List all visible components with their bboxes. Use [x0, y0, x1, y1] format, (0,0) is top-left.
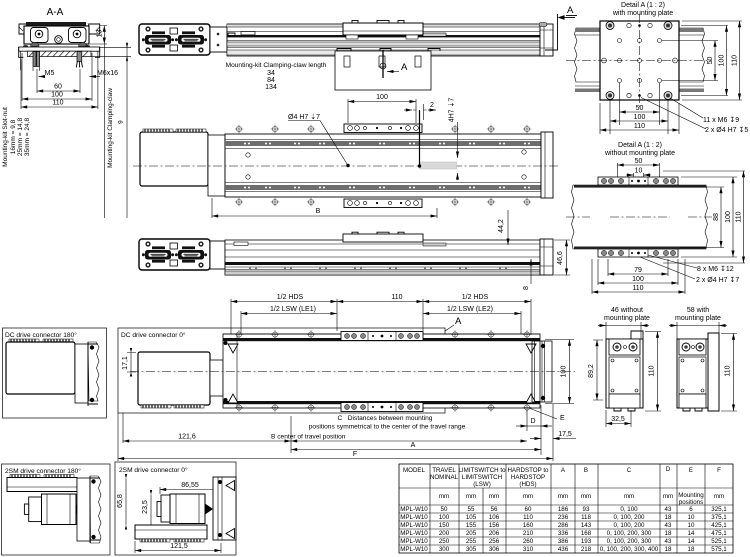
svg-text:MODEL: MODEL [403, 467, 426, 474]
svg-text:110: 110 [649, 365, 656, 376]
svg-text:Ø4 H7 ⇣7: Ø4 H7 ⇣7 [288, 113, 320, 121]
svg-text:11 x M6 ↧9: 11 x M6 ↧9 [703, 116, 739, 124]
svg-text:475,1: 475,1 [711, 530, 727, 537]
svg-text:43: 43 [665, 522, 672, 529]
svg-text:without mounting plate: without mounting plate [604, 150, 675, 157]
svg-text:200: 200 [439, 530, 450, 537]
svg-text:100: 100 [725, 211, 732, 223]
svg-text:B: B [316, 208, 321, 215]
svg-text:1/2 LSW (LE2): 1/2 LSW (LE2) [447, 306, 493, 313]
svg-text:A: A [567, 5, 574, 16]
svg-text:mm: mm [523, 493, 533, 500]
svg-text:0, 100, 200, 300: 0, 100, 200, 300 [607, 538, 652, 545]
svg-text:2: 2 [430, 102, 434, 109]
svg-text:110: 110 [634, 123, 645, 130]
svg-text:425,1: 425,1 [711, 522, 727, 529]
svg-text:MPL-W10: MPL-W10 [400, 506, 428, 513]
svg-text:205: 205 [466, 530, 477, 537]
svg-text:110: 110 [725, 365, 732, 376]
svg-text:236: 236 [558, 514, 569, 521]
svg-text:1/2 HDS: 1/2 HDS [277, 294, 304, 301]
svg-text:9: 9 [118, 120, 125, 124]
svg-text:106: 106 [489, 514, 500, 521]
svg-text:160: 160 [523, 522, 534, 529]
svg-text:100: 100 [634, 114, 646, 121]
svg-text:86,55: 86,55 [181, 482, 199, 489]
svg-text:436: 436 [558, 546, 569, 553]
svg-text:56: 56 [491, 506, 498, 513]
svg-text:1/2 HDS: 1/2 HDS [462, 294, 489, 301]
svg-text:250: 250 [439, 538, 450, 545]
svg-text:110: 110 [632, 285, 643, 292]
svg-text:Mounting-kit Clamping-claw len: Mounting-kit Clamping-claw length [226, 62, 327, 69]
svg-text:186: 186 [558, 506, 569, 513]
svg-text:168: 168 [581, 530, 592, 537]
svg-text:18: 18 [665, 530, 672, 537]
svg-text:mounting plate: mounting plate [675, 315, 721, 322]
svg-text:positions symmetrical to the c: positions symmetrical to the center of t… [309, 424, 466, 431]
svg-text:A-A: A-A [47, 7, 64, 18]
svg-text:134: 134 [265, 84, 277, 91]
svg-text:43: 43 [665, 538, 672, 545]
svg-text:121,5: 121,5 [170, 543, 188, 550]
svg-text:286: 286 [558, 522, 569, 529]
svg-text:44,2: 44,2 [498, 219, 505, 233]
svg-text:46,6: 46,6 [557, 251, 564, 265]
svg-text:65,8: 65,8 [117, 494, 124, 508]
svg-text:110: 110 [391, 294, 402, 301]
svg-text:260: 260 [523, 538, 534, 545]
svg-text:0, 100, 200: 0, 100, 200 [614, 522, 646, 529]
svg-text:mm: mm [466, 493, 476, 500]
svg-text:110: 110 [736, 211, 743, 222]
svg-text:143: 143 [581, 522, 592, 529]
svg-text:46 without: 46 without [611, 307, 643, 314]
svg-text:Detail A (1 : 2): Detail A (1 : 2) [621, 2, 665, 9]
svg-text:35mm = 24,8: 35mm = 24,8 [24, 118, 31, 157]
svg-text:575,1: 575,1 [711, 546, 727, 553]
svg-text:6: 6 [689, 506, 693, 513]
svg-text:218: 218 [581, 546, 592, 553]
svg-text:M5: M5 [45, 70, 55, 77]
svg-text:HARDSTOP to: HARDSTOP to [507, 467, 549, 474]
svg-text:50: 50 [635, 158, 643, 165]
svg-text:MPL-W10: MPL-W10 [400, 546, 428, 553]
svg-text:110: 110 [52, 100, 63, 107]
svg-text:mm: mm [439, 493, 449, 500]
svg-text:121,6: 121,6 [178, 434, 196, 441]
svg-text:mm: mm [714, 493, 724, 500]
svg-text:118: 118 [581, 514, 591, 521]
svg-text:93: 93 [583, 506, 590, 513]
svg-text:D: D [666, 466, 671, 473]
svg-text:A: A [401, 62, 408, 73]
svg-text:79: 79 [634, 267, 642, 274]
svg-text:10: 10 [635, 168, 643, 175]
svg-text:34: 34 [267, 70, 275, 77]
svg-text:210: 210 [523, 530, 534, 537]
svg-text:206: 206 [489, 530, 500, 537]
svg-text:156: 156 [489, 522, 500, 529]
svg-text:TRAVEL: TRAVEL [432, 467, 456, 474]
svg-text:100: 100 [632, 276, 644, 283]
svg-text:300: 300 [439, 546, 450, 553]
svg-text:Detail A (1 : 2): Detail A (1 : 2) [618, 142, 662, 149]
svg-text:E: E [560, 415, 565, 422]
svg-text:17,1: 17,1 [122, 356, 129, 370]
svg-text:HARDSTOP: HARDSTOP [511, 474, 545, 481]
svg-text:88: 88 [713, 213, 720, 221]
svg-text:525,1: 525,1 [711, 538, 727, 545]
svg-text:mm: mm [558, 493, 568, 500]
svg-text:386: 386 [558, 538, 569, 545]
svg-text:mm: mm [663, 493, 673, 500]
svg-text:MPL-W10: MPL-W10 [400, 522, 428, 529]
svg-text:100: 100 [719, 55, 726, 67]
svg-text:DC drive connector 180°: DC drive connector 180° [5, 331, 77, 339]
svg-text:mm: mm [489, 493, 499, 500]
svg-text:18: 18 [665, 514, 672, 521]
svg-text:55: 55 [468, 506, 475, 513]
svg-text:100: 100 [561, 366, 568, 378]
svg-text:0, 100, 200: 0, 100, 200 [614, 514, 646, 521]
svg-text:B: B [584, 467, 588, 474]
svg-text:50: 50 [707, 57, 714, 65]
svg-text:193: 193 [581, 538, 592, 545]
svg-text:105: 105 [466, 514, 477, 521]
svg-text:Mounting-kit Clamping-claw: Mounting-kit Clamping-claw [107, 88, 114, 168]
svg-text:mm: mm [581, 493, 591, 500]
svg-text:2SM drive connector 0°: 2SM drive connector 0° [119, 466, 188, 474]
svg-text:LIMITSWITCH to: LIMITSWITCH to [458, 467, 506, 474]
svg-text:100: 100 [439, 514, 450, 521]
svg-text:MPL-W10: MPL-W10 [400, 530, 428, 537]
svg-text:89,2: 89,2 [588, 364, 595, 378]
svg-text:mm: mm [624, 493, 634, 500]
svg-text:14: 14 [688, 538, 695, 545]
svg-text:375,1: 375,1 [711, 514, 727, 521]
svg-text:A: A [411, 442, 416, 449]
svg-text:60: 60 [54, 84, 62, 91]
svg-text:100: 100 [376, 94, 388, 101]
svg-text:43: 43 [665, 506, 672, 513]
svg-text:Mounting-kit Slot-nut: Mounting-kit Slot-nut [2, 107, 9, 167]
svg-text:F: F [353, 451, 357, 458]
svg-text:(LSW): (LSW) [473, 481, 491, 488]
svg-text:255: 255 [466, 538, 477, 545]
svg-text:50: 50 [636, 105, 644, 112]
svg-text:2 x Ø4 H7 ↧5: 2 x Ø4 H7 ↧5 [705, 126, 748, 134]
svg-text:150: 150 [439, 522, 450, 529]
svg-text:D: D [530, 418, 535, 425]
svg-text:305: 305 [466, 546, 477, 553]
svg-text:E: E [689, 467, 693, 474]
svg-text:0, 100: 0, 100 [620, 506, 638, 513]
svg-text:B center of travel position: B center of travel position [271, 434, 346, 441]
svg-text:8: 8 [523, 286, 530, 290]
svg-text:325,1: 325,1 [711, 506, 727, 513]
svg-text:positions: positions [679, 499, 703, 506]
svg-text:310: 310 [523, 546, 534, 553]
svg-text:4H7 ⇣7: 4H7 ⇣7 [448, 98, 456, 123]
svg-text:18: 18 [688, 546, 695, 553]
svg-text:mounting plate: mounting plate [604, 315, 650, 322]
svg-text:F: F [717, 467, 721, 474]
svg-text:110: 110 [523, 514, 533, 521]
svg-text:336: 336 [558, 530, 569, 537]
svg-text:60: 60 [525, 506, 532, 513]
svg-text:155: 155 [466, 522, 477, 529]
svg-text:14: 14 [688, 530, 695, 537]
svg-text:100: 100 [51, 92, 63, 99]
svg-text:C Distances between mounting: C Distances between mounting [338, 415, 433, 422]
svg-text:8 x M6 ↧12: 8 x M6 ↧12 [697, 265, 734, 273]
svg-text:0, 100, 200, 300, 400: 0, 100, 200, 300, 400 [600, 546, 659, 553]
svg-text:84: 84 [267, 77, 275, 84]
svg-text:58 with: 58 with [687, 307, 709, 314]
svg-text:18: 18 [665, 546, 672, 553]
svg-text:2SM drive connector 180°: 2SM drive connector 180° [5, 467, 81, 475]
svg-text:306: 306 [489, 546, 500, 553]
svg-text:10: 10 [688, 514, 695, 521]
svg-text:MPL-W10: MPL-W10 [400, 538, 428, 545]
svg-text:MPL-W10: MPL-W10 [400, 514, 428, 521]
svg-text:25mm = 14,8: 25mm = 14,8 [17, 118, 24, 157]
svg-text:C: C [627, 467, 632, 474]
svg-text:0, 100, 200, 300: 0, 100, 200, 300 [607, 530, 652, 537]
svg-text:A: A [455, 316, 462, 327]
svg-text:LIMITSWITCH: LIMITSWITCH [462, 474, 502, 481]
svg-text:M6x16: M6x16 [97, 70, 118, 77]
svg-text:16mm = 9,8: 16mm = 9,8 [10, 119, 17, 154]
svg-text:DC drive connector 0°: DC drive connector 0° [121, 331, 186, 339]
svg-text:13: 13 [97, 30, 104, 38]
svg-text:10: 10 [688, 522, 695, 529]
svg-text:50: 50 [441, 506, 448, 513]
svg-text:23,5: 23,5 [142, 500, 149, 514]
svg-text:2 x Ø4 H7 ↧7: 2 x Ø4 H7 ↧7 [696, 276, 739, 284]
svg-text:17,5: 17,5 [558, 431, 572, 438]
svg-text:32,5: 32,5 [611, 416, 625, 423]
svg-text:1/2 LSW (LE1): 1/2 LSW (LE1) [270, 306, 316, 313]
svg-text:with mounting plate: with mounting plate [612, 10, 673, 17]
svg-text:256: 256 [489, 538, 500, 545]
svg-text:110: 110 [732, 55, 739, 66]
svg-text:NOMINAL: NOMINAL [430, 474, 459, 481]
svg-text:Mounting: Mounting [678, 492, 704, 499]
svg-text:(HDS): (HDS) [519, 481, 536, 488]
